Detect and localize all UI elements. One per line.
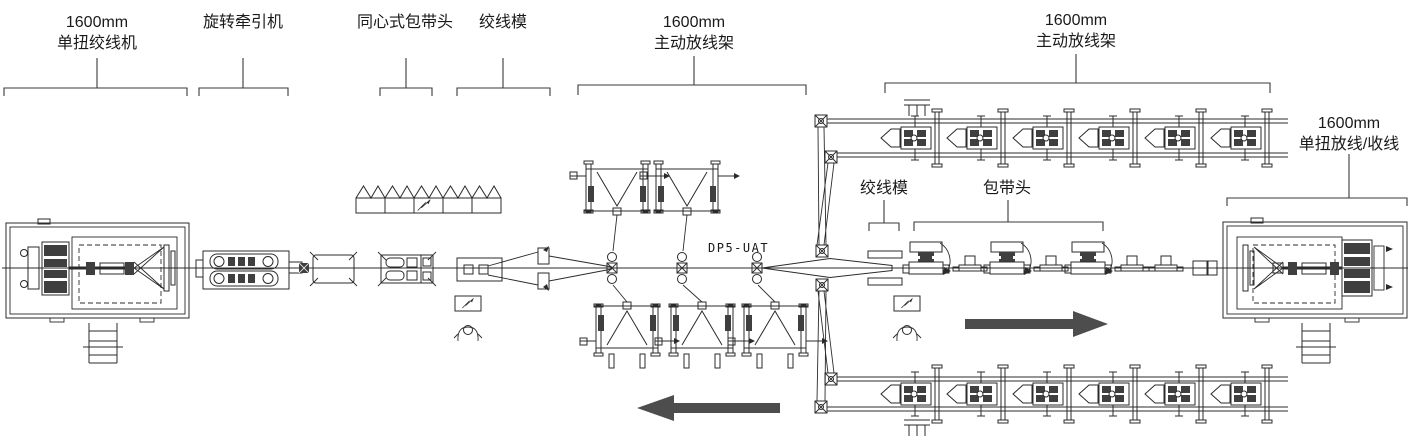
bracket-right-takeup [1227,154,1407,206]
right-takeup-machine [1208,218,1407,363]
bracket-center-payoff [578,56,806,95]
ladder-icon [83,323,123,363]
taping-head-3 [1065,242,1113,275]
callout-stranding-die-right: 绞线模 [860,179,908,231]
label-right-takeup-line2: 单扭放线/收线 [1299,135,1399,153]
callout-rotary-capstan: 旋转牵引机 [199,13,288,96]
label-right-payoff-line2: 主动放线架 [1036,32,1116,50]
label-model-code: DP5-UAT [708,241,769,255]
bracket-left-strander [4,58,187,96]
payoff-stand-lower-1 [580,302,680,368]
payoff-stand-lower-2 [655,302,755,368]
payoff-unit [1013,109,1074,167]
label-stranding-die-right: 绞线模 [860,179,908,197]
left-flow-arrow-icon [637,395,780,421]
taping-head-2 [984,242,1032,275]
payoff-unit [1013,365,1074,423]
machine-layout-diagram: 1600mm 单扭绞线机 旋转牵引机 同心式包带头 绞线模 1600mm 主动放… [0,0,1413,442]
guide-stand [953,256,987,271]
callout-right-takeup: 1600mm 单扭放线/收线 [1227,115,1407,206]
label-left-strander-line2: 单扭绞线机 [57,34,137,52]
payoff-wires-lower [613,285,775,302]
payoff-unit [1211,109,1272,167]
payoff-row-rails-top [827,119,1288,157]
bracket-right-payoff [885,54,1270,93]
rotary-capstan-machine [196,251,302,289]
payoff-row-bottom [881,365,1272,436]
payoff-stand-upper-1 [570,161,670,215]
die-tray-rack [356,186,501,213]
guide-stand [1149,256,1183,271]
callout-taping-head-right: 包带头 [914,179,1103,231]
bracket-concentric-taping-head [380,58,432,96]
payoff-unit [881,109,942,167]
guide-stand [1115,256,1149,271]
label-stranding-die-left: 绞线模 [479,13,527,31]
bracket-stranding-die-left [457,58,550,96]
payoff-unit [947,109,1008,167]
bracket-stranding-die-right [869,200,899,231]
left-strander-machine [6,219,189,363]
label-concentric-taping-head: 同心式包带头 [357,13,453,31]
bracket-taping-head-right [914,200,1103,231]
ladder-icon [1296,323,1336,363]
payoff-unit [881,365,942,423]
callout-stranding-die-left: 绞线模 [457,13,550,96]
payoff-unit [1211,365,1272,423]
label-taping-head-right: 包带头 [983,179,1031,197]
callout-center-payoff: 1600mm 主动放线架 [578,14,806,95]
label-center-payoff-line2: 主动放线架 [654,34,734,52]
callout-right-payoff: 1600mm 主动放线架 [885,12,1270,93]
right-flow-arrow-icon [965,311,1108,337]
label-rotary-capstan: 旋转牵引机 [203,13,283,31]
concentric-taping-machine [378,252,436,286]
label-left-strander-line1: 1600mm [66,14,128,31]
payoff-unit [947,365,1008,423]
line-coupling [299,263,309,273]
guide-stand [1034,256,1068,271]
callout-left-strander: 1600mm 单扭绞线机 [4,14,187,96]
bracket-rotary-capstan [199,58,288,96]
guide-machine [310,252,357,286]
operator-station-left [454,296,482,341]
payoff-stand-lower-3 [728,302,828,368]
label-right-takeup-line1: 1600mm [1318,115,1380,132]
payoff-wires-upper [613,215,687,251]
operator-station-right [893,296,921,341]
payoff-unit [1079,109,1140,167]
callout-concentric-taping-head: 同心式包带头 [357,13,453,96]
break-slash-icon [418,200,431,211]
payoff-unit [1145,365,1206,423]
line-turn-pulleys [815,115,837,413]
taping-head-1 [903,242,951,275]
label-center-payoff-line1: 1600mm [663,14,725,31]
payoff-unit [1145,109,1206,167]
rack-icon [904,100,930,116]
label-right-payoff-line1: 1600mm [1045,12,1107,29]
payoff-stand-upper-2 [640,161,740,215]
rack-icon [904,420,930,436]
payoff-unit [1079,365,1140,423]
payoff-row-rails-bottom [827,377,1288,411]
